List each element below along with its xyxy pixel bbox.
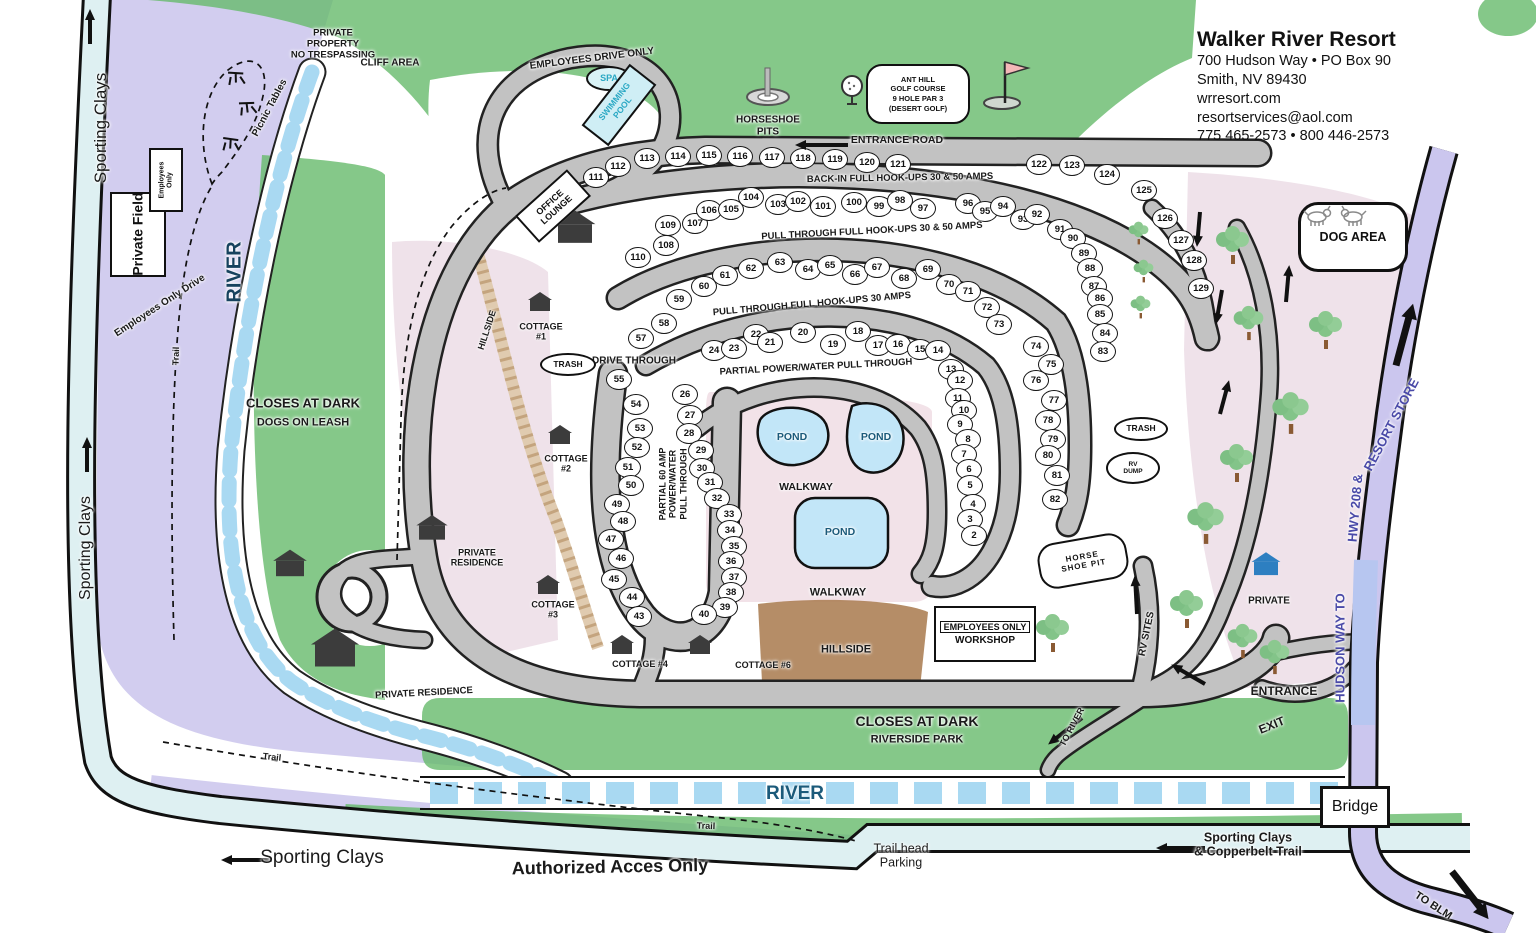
backin-hookups: BACK-IN FULL HOOK-UPS 30 & 50 AMPS (807, 172, 993, 186)
hillside-left: HILLSIDE (476, 309, 499, 351)
resort-address-2: Smith, NV 89430 (1197, 71, 1527, 90)
dogs-on-leash: DOGS ON LEASH (257, 417, 349, 430)
workshop-sign: EMPLOYEES ONLY WORKSHOP (934, 606, 1036, 662)
private-residence-1: PRIVATE RESIDENCE (451, 548, 504, 569)
partial-60amp: PARTIAL 60 AMP POWER/WATER PULL THROUGH (657, 448, 688, 521)
pullthrough-30: PULL THROUGH FULL HOOK-UPS 30 AMPS (712, 291, 911, 319)
partial-powerwater: PARTIAL POWER/WATER PULL THROUGH (719, 357, 912, 378)
river-left: RIVER (224, 241, 247, 302)
hudson-way-3: RESORT STORE (1361, 376, 1422, 473)
pond-3: POND (825, 526, 855, 538)
private-residence-2: PRIVATE RESIDENCE (375, 686, 473, 702)
dog-icon (1301, 205, 1371, 231)
resort-phone: 775 465-2573 • 800 446-2573 (1197, 127, 1527, 146)
trail-vertical: Trail (171, 347, 182, 366)
entrance-road: ENTRANCE ROAD (851, 134, 943, 146)
resort-email: resortservices@aol.com (1197, 109, 1527, 128)
rv-dump-sign: RV DUMP (1106, 452, 1160, 484)
authorized-access: Authorized Acces Only (512, 855, 709, 879)
dog-area: DOG AREA (1298, 202, 1408, 272)
sporting-clays-mid: Sporting Clays (77, 496, 95, 600)
riverside-park: RIVERSIDE PARK (871, 734, 964, 747)
resort-map: 1111121131141151161171181191201211221231… (0, 0, 1536, 933)
resort-website: wrresort.com (1197, 90, 1527, 109)
rv-sites: RV SITES (1137, 611, 1158, 658)
hillside-center: HILLSIDE (821, 644, 871, 657)
sporting-clays-bottom: Sporting Clays (260, 847, 384, 869)
hudson-way-2: HWY 208 & (1346, 473, 1367, 542)
to-blm: TO BLM (1412, 889, 1454, 922)
trail-bottom-1: Trail (262, 751, 281, 763)
hudson-way-1: HUDSON WAY TO (1334, 593, 1349, 703)
cottage-1: COTTAGE #1 (519, 322, 562, 343)
to-river: TO RIVER (1057, 706, 1086, 748)
horseshoe-pits: HORSESHOE PITS (736, 115, 800, 138)
cottage-4: COTTAGE #4 (612, 659, 668, 669)
trash-sign-left: TRASH (540, 353, 596, 376)
walkway-lower: WALKWAY (810, 587, 866, 600)
resort-title: Walker River Resort (1197, 28, 1527, 52)
cliff-area: CLIFF AREA (360, 57, 419, 69)
exit-bottom: EXIT (1257, 715, 1287, 738)
closes-at-dark-bottom: CLOSES AT DARK (856, 713, 979, 729)
employees-only-drive: Employees Only Drive (113, 272, 208, 339)
pond-1: POND (777, 431, 807, 443)
bridge-sign: Bridge (1320, 786, 1390, 828)
picnic-tables: Picnic Tables (250, 77, 290, 138)
cottage-2: COTTAGE #2 (544, 454, 587, 475)
pullthrough-3050: PULL THROUGH FULL HOOK-UPS 30 & 50 AMPS (761, 221, 983, 244)
pond-2: POND (861, 431, 891, 443)
cottage-6: COTTAGE #6 (735, 660, 791, 670)
employees-only-sign: Employees Only (149, 148, 183, 212)
closes-at-dark-left: CLOSES AT DARK (246, 397, 360, 412)
resort-header: Walker River Resort 700 Hudson Way • PO … (1197, 28, 1527, 146)
resort-address-1: 700 Hudson Way • PO Box 90 (1197, 52, 1527, 71)
river-bottom: RIVER (766, 783, 824, 805)
cottage-3: COTTAGE #3 (531, 600, 574, 621)
trash-sign-right: TRASH (1114, 417, 1168, 441)
golf-course-sign: ANT HILL GOLF COURSE 9 HOLE PAR 3 (DESER… (866, 64, 970, 124)
trailhead-parking: Trail head Parking (873, 842, 928, 871)
drive-through: DRIVE THROUGH (592, 355, 676, 367)
walkway-upper: WALKWAY (779, 481, 833, 493)
sporting-clays-top: Sporting Clays (91, 73, 111, 184)
copperbelt: Sporting Clays & Copperbelt Trail (1194, 831, 1302, 860)
trail-bottom-2: Trail (697, 821, 716, 832)
private-right: PRIVATE (1248, 595, 1290, 607)
entrance-bottom: ENTRANCE (1251, 685, 1318, 699)
